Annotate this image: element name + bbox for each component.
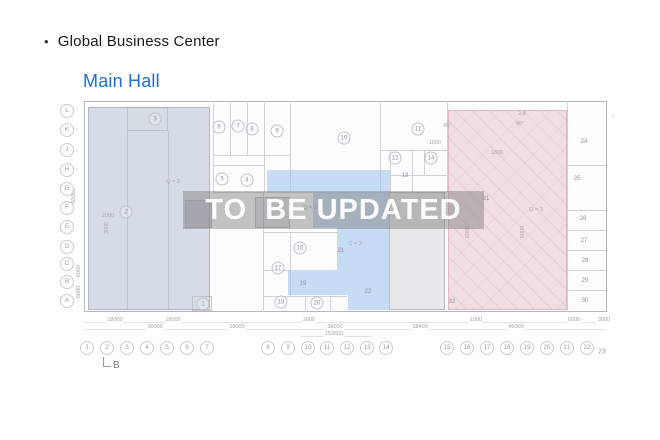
section-marker-label: B xyxy=(113,360,120,371)
col-axis-label: 6 xyxy=(180,341,194,355)
room-number: 5 xyxy=(216,173,229,186)
room-number: 4 xyxy=(241,174,254,187)
plan-annotation: 2.8 xyxy=(518,111,526,117)
row-axis-label: D xyxy=(60,240,74,254)
wall-line xyxy=(330,296,331,312)
room-number: 6 xyxy=(213,121,226,134)
col-axis-label: 3 xyxy=(120,341,134,355)
room-number: 14 xyxy=(425,152,438,165)
col-axis-label: 20 xyxy=(540,341,554,355)
col-axis-label: 18 xyxy=(500,341,514,355)
dimension-text: 45000 xyxy=(507,324,524,330)
col-axis-label: 22 xyxy=(580,341,594,355)
plan-annotation: 45° xyxy=(443,123,451,129)
dimension-text: 18000 xyxy=(106,317,123,323)
row-axis-label: B xyxy=(60,275,74,289)
dimension-text: 6000 xyxy=(567,317,581,323)
col-axis-label: 7 xyxy=(200,341,214,355)
row-axis-label: A xyxy=(60,294,74,308)
wall-line xyxy=(567,165,606,166)
wall-line xyxy=(390,175,447,176)
page-title: Global Business Center xyxy=(58,33,220,50)
plan-annotation: 6000 xyxy=(76,286,82,298)
section-marker-line-h xyxy=(103,366,111,367)
room-number: 13 xyxy=(402,173,409,179)
room-number: 27 xyxy=(581,238,588,244)
room-number: 22 xyxy=(365,289,372,295)
plan-annotation: 3000 xyxy=(104,222,110,234)
wall-line xyxy=(567,250,606,251)
page-header: • Global Business Center xyxy=(44,33,220,50)
col-axis-label: 17 xyxy=(480,341,494,355)
room-number: 15 xyxy=(294,242,307,255)
plan-annotation: 45° xyxy=(516,121,524,127)
col-axis-label: 13 xyxy=(360,341,374,355)
plan-annotation: 6000 xyxy=(76,265,82,277)
col-axis-label: 19 xyxy=(520,341,534,355)
wall-line xyxy=(263,232,337,233)
col-axis-label: 15 xyxy=(440,341,454,355)
col-axis-label: 11 xyxy=(320,341,334,355)
col-axis-label: 14 xyxy=(379,341,393,355)
wall-line xyxy=(213,103,214,192)
plan-annotation: 2000 xyxy=(102,213,114,219)
room-number: 26 xyxy=(580,216,587,222)
col-axis-label: 5 xyxy=(160,341,174,355)
dimension-text: 36000 xyxy=(146,324,163,330)
room-number: 2 xyxy=(120,206,133,219)
room-number: 12 xyxy=(389,152,402,165)
room-number: 21 xyxy=(338,248,345,254)
plan-annotation: Q = 3 xyxy=(348,241,362,247)
hall-title: Main Hall xyxy=(83,71,160,92)
col-axis-label: 2 xyxy=(100,341,114,355)
room-number: 7 xyxy=(232,120,245,133)
bullet-icon: • xyxy=(44,34,49,49)
room-number: 20 xyxy=(311,297,324,310)
col-axis-label: 8 xyxy=(261,341,275,355)
col-axis-label: 21 xyxy=(560,341,574,355)
wall-line xyxy=(230,103,231,155)
plan-annotation: 6000 xyxy=(520,226,526,238)
watermark-banner: TO BE UPDATED xyxy=(183,191,484,229)
row-axis-label: C xyxy=(60,257,74,271)
wall-line xyxy=(567,103,568,312)
room-number: 10 xyxy=(338,132,351,145)
row-axis-label: G xyxy=(60,182,74,196)
wall-line xyxy=(567,210,606,211)
col-axis-label: 12 xyxy=(340,341,354,355)
plan-annotation: Q = 3 xyxy=(529,207,543,213)
plan-annotation: 1800 xyxy=(491,150,503,156)
col-axis-label: 16 xyxy=(460,341,474,355)
room-number: 30 xyxy=(582,298,589,304)
wall-line xyxy=(305,296,306,312)
col-axis-label: 23 xyxy=(598,349,606,356)
dimension-text: 18000 xyxy=(228,324,245,330)
room-number: 9 xyxy=(271,125,284,138)
room-number: 24 xyxy=(581,139,588,145)
room-number: 25 xyxy=(574,176,581,182)
wall-line xyxy=(412,150,413,192)
row-axis-label: H xyxy=(60,163,74,177)
row-axis-label: F xyxy=(60,201,74,215)
wall-line xyxy=(567,270,606,271)
room-number: 1 xyxy=(197,298,210,311)
wall-line xyxy=(380,150,447,151)
col-axis-label: 4 xyxy=(140,341,154,355)
plan-annotation: Q = 3 xyxy=(166,179,180,185)
row-axis-label: L xyxy=(60,104,74,118)
col-axis-label: 1 xyxy=(80,341,94,355)
dimension-text: 36000 xyxy=(326,324,343,330)
room-number: 17 xyxy=(272,262,285,275)
row-axis-label: J xyxy=(60,143,74,157)
slide: • Global Business Center Main Hall 12345… xyxy=(0,0,660,440)
dimension-text: 1000 xyxy=(469,317,483,323)
col-axis-label: 10 xyxy=(301,341,315,355)
wall-line xyxy=(567,290,606,291)
dimension-text: 18000 xyxy=(164,317,181,323)
wall-line xyxy=(213,155,290,156)
plan-annotation: 1000 xyxy=(429,140,441,146)
row-axis-label: E xyxy=(60,220,74,234)
wall-line xyxy=(567,230,606,231)
dimension-text: 153600 xyxy=(324,331,344,337)
room-number: 32 xyxy=(449,299,456,305)
plan-annotation: – xyxy=(611,114,614,120)
dimension-text: 18400 xyxy=(411,324,428,330)
room-number: 8 xyxy=(246,123,259,136)
room-number: 11 xyxy=(412,123,425,136)
room-number: 18 xyxy=(275,296,288,309)
row-axis-label: K xyxy=(60,123,74,137)
dimension-text: 3000 xyxy=(597,317,611,323)
room-number: 3 xyxy=(149,113,162,126)
wall-line xyxy=(213,165,264,166)
room-number: 29 xyxy=(582,278,589,284)
wall-line xyxy=(264,103,265,192)
col-axis-label: 9 xyxy=(281,341,295,355)
room-number: 28 xyxy=(582,258,589,264)
room-number: 19 xyxy=(300,281,307,287)
dimension-text: 2000 xyxy=(302,317,316,323)
dimension-line xyxy=(84,322,606,323)
